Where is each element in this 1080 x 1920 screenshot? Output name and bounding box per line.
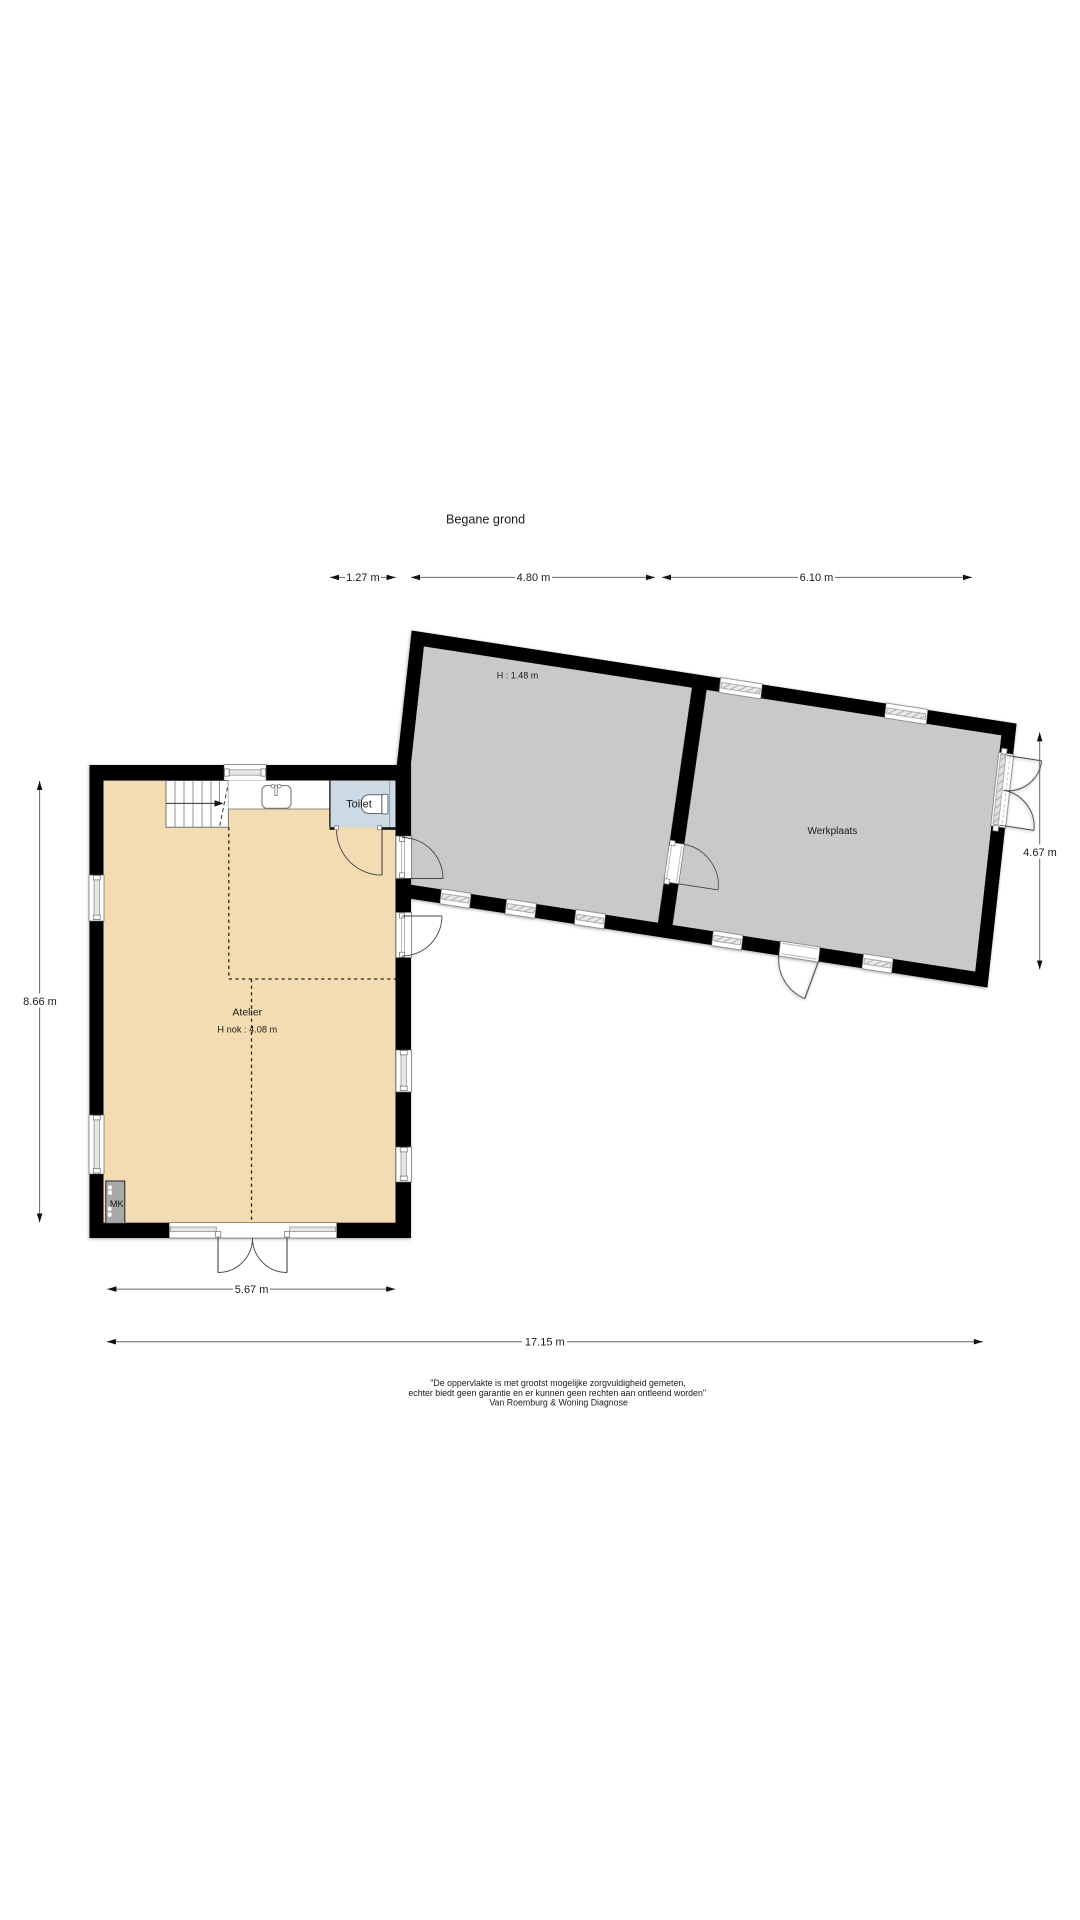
svg-text:Atelier: Atelier [232,1007,262,1019]
svg-text:Begane grond: Begane grond [446,513,525,527]
svg-text:H nok : 4.08 m: H nok : 4.08 m [217,1025,277,1035]
svg-text:Werkplaats: Werkplaats [807,826,857,837]
svg-text:"De oppervlakte is met grootst: "De oppervlakte is met grootst mogelijke… [430,1378,685,1388]
svg-text:Van Roemburg & Woning Diagnose: Van Roemburg & Woning Diagnose [489,1398,628,1408]
svg-text:1.27 m: 1.27 m [346,572,380,584]
svg-text:echter biedt geen garantie en: echter biedt geen garantie en er kunnen … [408,1388,706,1398]
svg-text:H : 1.48 m: H : 1.48 m [497,671,539,681]
svg-text:4.67 m: 4.67 m [1023,847,1057,859]
svg-text:Toilet: Toilet [346,799,372,811]
svg-text:8.66 m: 8.66 m [23,996,57,1008]
svg-text:4.80 m: 4.80 m [517,572,551,584]
svg-text:MK: MK [110,1199,125,1209]
svg-text:17.15 m: 17.15 m [525,1337,565,1349]
svg-text:6.10 m: 6.10 m [800,572,834,584]
svg-text:5.67 m: 5.67 m [235,1284,269,1296]
